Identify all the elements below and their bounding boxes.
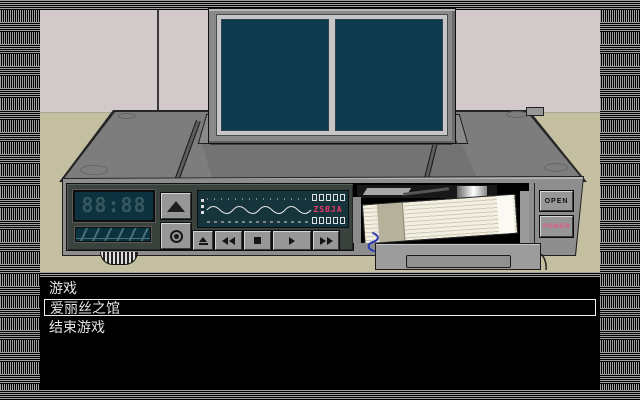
tray-handle-recess	[406, 255, 511, 268]
play-icon	[289, 237, 295, 245]
record-icon	[170, 230, 183, 243]
signal-indicator-block: ZSBJA	[311, 194, 345, 224]
vcr-waveform-display: ZSBJA	[197, 190, 349, 228]
eject-icon	[199, 237, 208, 245]
eject-button[interactable]	[161, 193, 191, 219]
bay-rail-left	[353, 197, 361, 243]
record-button[interactable]	[161, 223, 191, 249]
video-cassette	[362, 194, 518, 243]
signal-code: ZSBJA	[313, 205, 342, 214]
stop-icon	[254, 237, 261, 244]
power-button[interactable]: POWER	[540, 216, 573, 237]
cassette-label-strip	[377, 203, 406, 243]
deck-rear-tab	[526, 107, 544, 116]
play-button[interactable]	[273, 231, 311, 250]
indicator-squares-top	[312, 194, 345, 201]
menu-item-quit-game[interactable]: 结束游戏	[44, 319, 596, 337]
deck-screw-mark	[118, 113, 136, 119]
monitor-bezel	[216, 14, 448, 136]
cassette-bay	[353, 183, 529, 243]
border-left-stripes	[0, 10, 40, 390]
fast-forward-icon	[320, 237, 333, 245]
vcr-counter-display	[75, 227, 151, 242]
scene-illustration: 88:88	[40, 10, 600, 272]
menu-item-game[interactable]: 游戏	[44, 280, 596, 298]
vcr-clock-display: 88:88	[73, 190, 155, 222]
monitor-screen-left-pane	[221, 19, 329, 131]
border-right-stripes	[600, 10, 640, 390]
cassette-edge	[497, 195, 516, 234]
bay-rail-right	[520, 191, 529, 243]
transport-controls	[193, 231, 341, 250]
border-bottom-stripes	[0, 390, 640, 400]
game-screen: 88:88	[0, 0, 640, 400]
vcr-foot	[100, 252, 138, 265]
game-menu: 游戏 爱丽丝之馆 结束游戏	[40, 277, 600, 390]
deck-screw-mark	[80, 165, 108, 175]
eject-small-button[interactable]	[193, 231, 213, 250]
triangle-up-icon	[167, 201, 185, 212]
fast-forward-button[interactable]	[313, 231, 339, 250]
deck-screw-mark	[506, 111, 528, 118]
panel-seam	[534, 183, 535, 249]
vcr-control-panel: 88:88	[66, 183, 354, 251]
menu-item-alice-mansion-selected[interactable]: 爱丽丝之馆	[44, 299, 596, 316]
deck-screw-mark	[544, 163, 568, 172]
cable	[541, 254, 546, 270]
rewind-icon	[222, 237, 235, 245]
stop-button[interactable]	[244, 231, 271, 250]
indicator-squares-bottom	[312, 217, 345, 224]
waveform-graph	[199, 192, 315, 228]
monitor-screen-right-pane	[335, 19, 443, 131]
flip-up-monitor	[208, 8, 456, 144]
wall-panel-seam	[157, 10, 159, 112]
rewind-button[interactable]	[215, 231, 242, 250]
cassette-tray-front	[375, 243, 541, 270]
open-button[interactable]: OPEN	[540, 191, 573, 211]
